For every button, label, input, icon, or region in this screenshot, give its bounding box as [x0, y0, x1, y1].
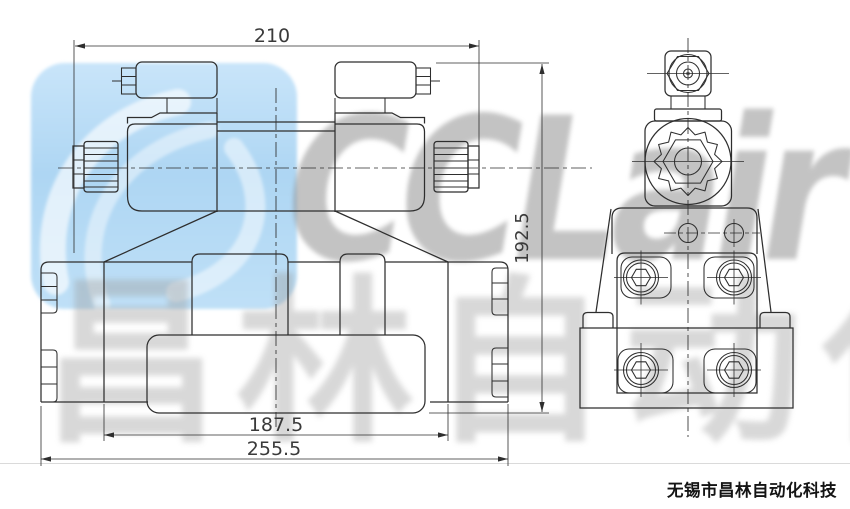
side-view: [580, 38, 793, 437]
left-groove-lower: [41, 350, 57, 402]
left-knurled-nut: [84, 142, 118, 193]
left-end-cap: [73, 146, 84, 188]
right-base-tab: [760, 313, 790, 329]
dim-210-label: 210: [254, 25, 290, 47]
wide-boss: [192, 254, 288, 335]
left-solenoid: [73, 62, 217, 212]
valve-technical-drawing: CCLair 昌林自动化: [0, 0, 850, 509]
left-connector-neck: [167, 98, 217, 113]
left-base-tab: [583, 313, 613, 329]
narrow-boss: [340, 254, 385, 335]
right-groove-lower: [492, 348, 508, 397]
right-knurled-nut: [434, 142, 468, 193]
left-coil-body: [128, 124, 218, 211]
right-solenoid: [335, 62, 479, 212]
right-terminal-screw: [416, 68, 431, 94]
dimension-lines: [41, 46, 542, 459]
valve-body-end: [580, 208, 793, 408]
left-connector-box: [136, 62, 217, 98]
mounting-plate: [617, 253, 757, 393]
right-end-cap: [468, 146, 479, 188]
company-name: 无锡市昌林自动化科技: [667, 477, 837, 501]
upper-body: [612, 208, 757, 254]
left-terminal-screw: [122, 68, 137, 94]
drawing-linework: 210 187.5 255.5 192.5: [0, 0, 850, 509]
right-connector-neck: [335, 98, 385, 113]
dim-192-5-label: 192.5: [512, 212, 533, 264]
right-coil-body: [335, 124, 425, 211]
main-body-slab: [147, 335, 425, 413]
dimensions: 210 187.5 255.5 192.5: [41, 25, 549, 466]
dim-187-5-label: 187.5: [249, 414, 303, 436]
base-slab: [580, 328, 793, 408]
lower-body: [41, 254, 508, 413]
left-groove-upper: [41, 273, 57, 313]
right-coil-flange: [335, 113, 425, 124]
left-coil-flange: [128, 113, 218, 124]
socket-screws: [614, 251, 761, 398]
front-view: [41, 62, 592, 430]
right-connector-box: [335, 62, 416, 98]
right-groove-upper: [492, 268, 508, 315]
dim-255-5-label: 255.5: [247, 438, 301, 460]
